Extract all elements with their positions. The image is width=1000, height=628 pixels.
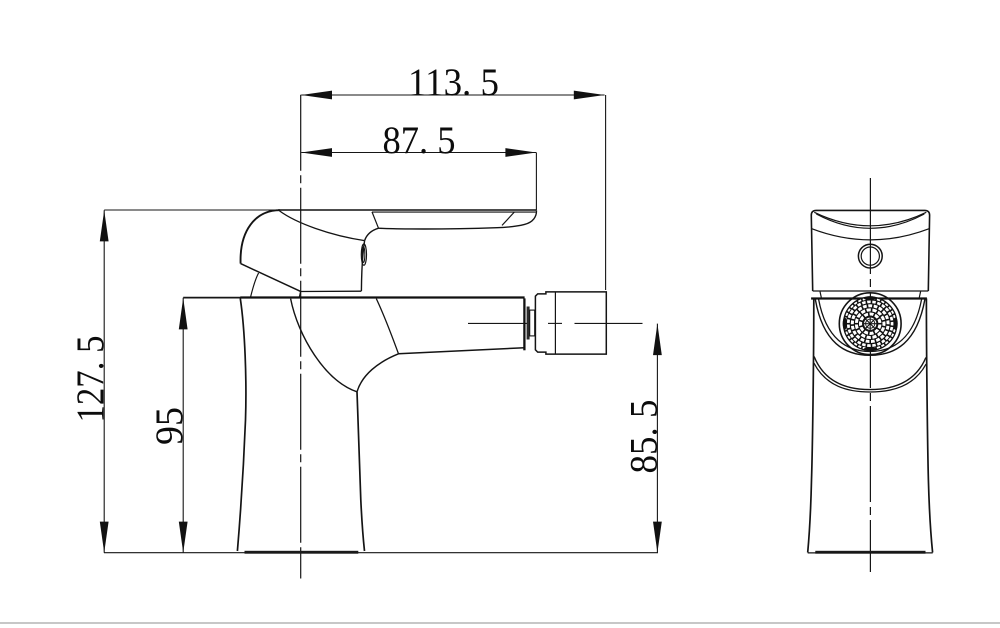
svg-text:127. 5: 127. 5 bbox=[69, 336, 112, 423]
svg-text:87. 5: 87. 5 bbox=[383, 119, 456, 162]
svg-text:95: 95 bbox=[148, 407, 191, 445]
svg-text:113. 5: 113. 5 bbox=[408, 61, 499, 104]
svg-text:85. 5: 85. 5 bbox=[623, 400, 666, 474]
